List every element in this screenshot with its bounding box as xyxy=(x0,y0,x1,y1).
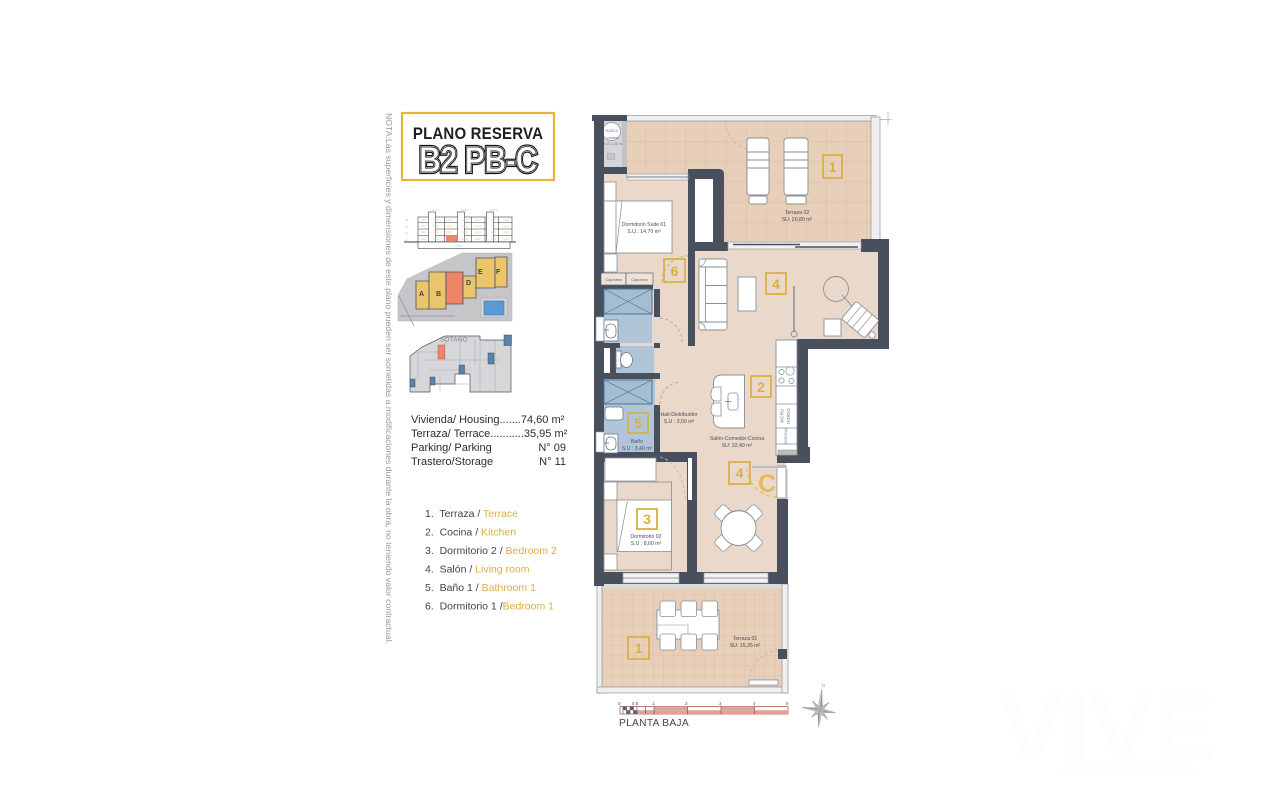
svg-text:b2e2: b2e2 xyxy=(475,224,481,228)
svg-text:COCINA: COCINA xyxy=(783,428,788,444)
svg-text:b2b2: b2b2 xyxy=(433,224,439,228)
svg-text:1: 1 xyxy=(829,159,837,175)
svg-text:Trastero/Storage: Trastero/Storage xyxy=(411,456,493,468)
svg-text:B: B xyxy=(436,291,441,298)
svg-text:6. Dormitorio 1 /Bedroom 1: 6. Dormitorio 1 /Bedroom 1 xyxy=(425,601,554,613)
svg-text:E: E xyxy=(478,269,483,276)
svg-text:0.5: 0.5 xyxy=(632,701,639,706)
svg-text:b2a2: b2a2 xyxy=(420,224,426,228)
svg-text:b2c1: b2c1 xyxy=(446,230,452,234)
svg-text:3. Dormitorio 2 / Bedroom 2: 3. Dormitorio 2 / Bedroom 2 xyxy=(425,545,557,557)
svg-text:S.U.: 14,70 m²: S.U.: 14,70 m² xyxy=(627,229,661,235)
svg-text:b2c2: b2c2 xyxy=(446,224,452,228)
svg-text:3: 3 xyxy=(643,511,651,527)
svg-text:Dormitorio Suite 01: Dormitorio Suite 01 xyxy=(622,222,667,228)
svg-text:S.U : 3,50 m²: S.U : 3,50 m² xyxy=(664,419,695,425)
svg-text:N° 09: N° 09 xyxy=(538,442,566,454)
svg-text:b2gb: b2gb xyxy=(503,237,509,241)
svg-text:b2f2: b2f2 xyxy=(491,224,497,228)
svg-text:VIVE: VIVE xyxy=(1000,675,1217,781)
svg-text:torre 3: torre 3 xyxy=(490,208,498,212)
svg-text:b2ab: b2ab xyxy=(420,237,426,241)
svg-text:b2g2: b2g2 xyxy=(503,224,509,228)
svg-text:Baño: Baño xyxy=(631,439,643,445)
svg-text:Terraza 02: Terraza 02 xyxy=(785,210,810,216)
svg-text:A: A xyxy=(419,291,424,298)
svg-text:b2d2: b2d2 xyxy=(462,224,468,228)
svg-text:D: D xyxy=(466,280,471,287)
svg-text:Salón-Comedor-Cocina: Salón-Comedor-Cocina xyxy=(710,436,764,442)
svg-text:b2fb: b2fb xyxy=(491,237,497,241)
svg-text:Parking/ Parking: Parking/ Parking xyxy=(411,442,492,454)
svg-text:PLANTA BAJA: PLANTA BAJA xyxy=(619,718,689,729)
svg-text:Cajonera: Cajonera xyxy=(605,277,622,282)
svg-text:SU: 20,80 m²: SU: 20,80 m² xyxy=(782,217,813,223)
svg-text:S.U: 1,00 m²: S.U: 1,00 m² xyxy=(603,142,623,146)
svg-text:HUECO: HUECO xyxy=(606,129,619,133)
svg-text:4. Salón / Living room: 4. Salón / Living room xyxy=(425,564,530,576)
svg-text:Terraza 01: Terraza 01 xyxy=(733,636,758,642)
svg-text:SÓTANO: SÓTANO xyxy=(440,337,468,344)
svg-text:S.U : 8,60 m²: S.U : 8,60 m² xyxy=(631,541,662,547)
svg-text:2: 2 xyxy=(757,379,765,395)
svg-text:1. Terraza / Terrace: 1. Terraza / Terrace xyxy=(425,508,518,520)
svg-text:5. Baño 1 / Bathroom 1: 5. Baño 1 / Bathroom 1 xyxy=(425,582,536,594)
svg-text:b2d3: b2d3 xyxy=(462,218,468,222)
svg-text:b2a3: b2a3 xyxy=(420,218,426,222)
svg-text:b2bb: b2bb xyxy=(433,237,439,241)
svg-text:b2db: b2db xyxy=(462,237,468,241)
svg-text:S.U : 3,40 m²: S.U : 3,40 m² xyxy=(622,446,653,452)
svg-text:5: 5 xyxy=(634,415,642,431)
svg-text:Hall-Distribuidor: Hall-Distribuidor xyxy=(661,412,698,418)
svg-text:Cajonera: Cajonera xyxy=(631,277,648,282)
svg-text:b2g3: b2g3 xyxy=(503,218,509,222)
svg-text:NOTA:Las superficies y dimensi: NOTA:Las superficies y dimensiones de es… xyxy=(384,113,394,644)
svg-text:C: C xyxy=(758,470,776,498)
svg-text:torre 1: torre 1 xyxy=(432,208,440,212)
svg-text:4: 4 xyxy=(736,465,744,481)
svg-text:MICRO: MICRO xyxy=(780,408,785,423)
svg-text:b2f1: b2f1 xyxy=(491,230,497,234)
svg-text:b2g1: b2g1 xyxy=(503,230,509,234)
svg-text:b2a1: b2a1 xyxy=(420,230,426,234)
svg-text:F: F xyxy=(496,269,501,276)
svg-text:B2 PB-C: B2 PB-C xyxy=(419,141,537,181)
svg-text:b2eb: b2eb xyxy=(475,237,481,241)
svg-text:SU: 15,35 m²: SU: 15,35 m² xyxy=(730,643,761,649)
svg-text:b2c3: b2c3 xyxy=(446,218,452,222)
svg-text:Terraza/ Terrace...........35,: Terraza/ Terrace...........35,95 m² xyxy=(411,428,568,440)
svg-text:2. Cocina / Kitchen: 2. Cocina / Kitchen xyxy=(425,527,516,539)
svg-text:b2e3: b2e3 xyxy=(475,218,481,222)
svg-text:6: 6 xyxy=(671,263,679,279)
svg-text:torre 2: torre 2 xyxy=(461,208,469,212)
svg-text:b2b1: b2b1 xyxy=(433,230,439,234)
svg-text:b2f3: b2f3 xyxy=(491,218,497,222)
svg-text:SU: 32,40 m²: SU: 32,40 m² xyxy=(722,443,753,449)
svg-text:sótano: sótano xyxy=(455,244,463,248)
svg-text:caldera: caldera xyxy=(607,136,619,140)
svg-text:b2b3: b2b3 xyxy=(433,218,439,222)
svg-text:HORNO: HORNO xyxy=(786,407,791,423)
svg-text:1: 1 xyxy=(635,640,643,656)
svg-text:b2d1: b2d1 xyxy=(462,230,468,234)
svg-text:N° 11: N° 11 xyxy=(539,456,566,468)
svg-text:Vivienda/ Housing.......74,60: Vivienda/ Housing.......74,60 m² xyxy=(411,414,565,426)
svg-text:4: 4 xyxy=(772,276,780,292)
svg-text:Dormitorio 02: Dormitorio 02 xyxy=(630,534,661,540)
svg-text:b2e1: b2e1 xyxy=(475,230,481,234)
